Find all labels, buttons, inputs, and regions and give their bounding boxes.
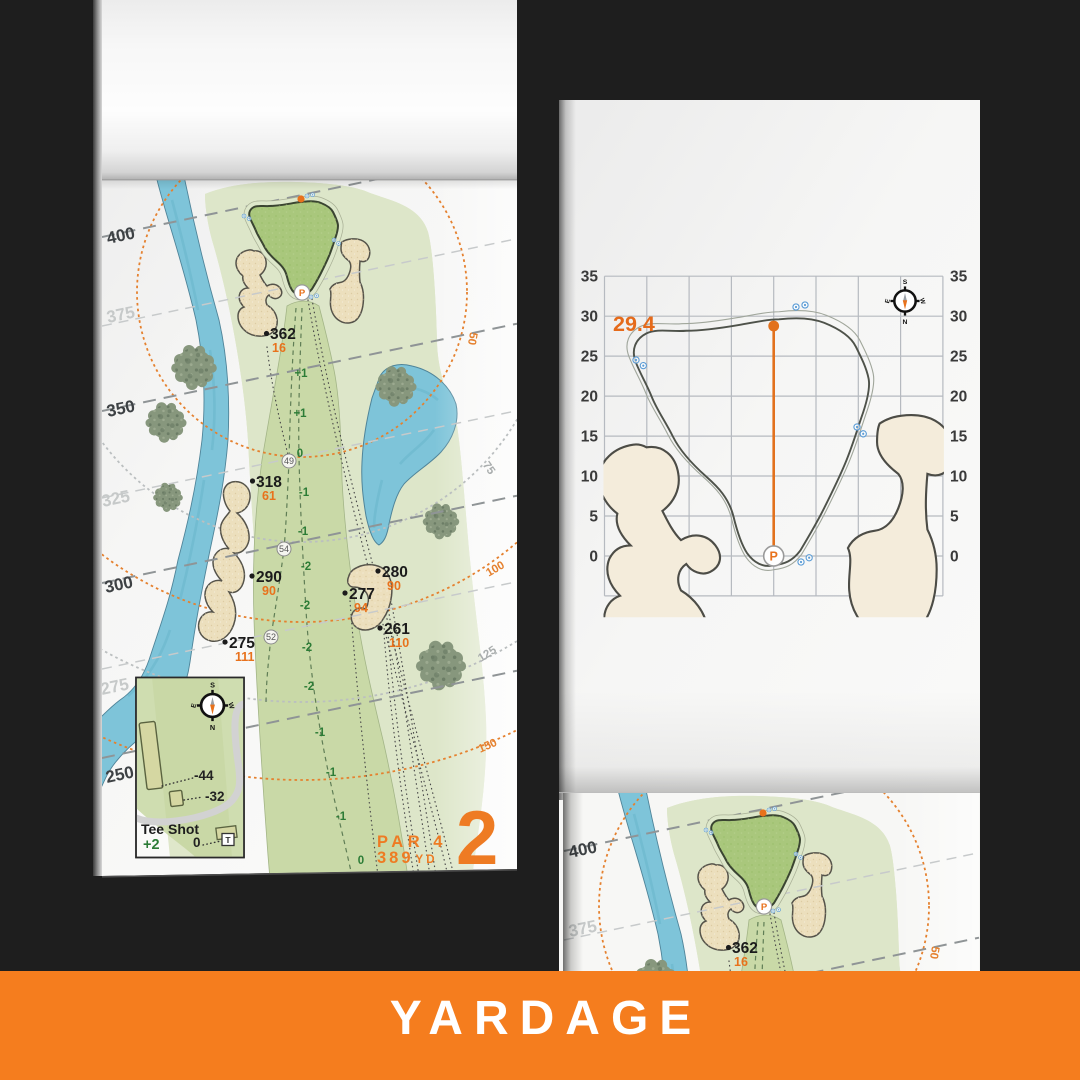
svg-text:30: 30 [950,309,967,326]
svg-text:15: 15 [950,429,968,446]
svg-text:5: 5 [589,509,598,526]
svg-text:25: 25 [950,349,968,366]
svg-text:29.4: 29.4 [613,312,655,336]
svg-text:20: 20 [950,389,967,406]
svg-text:10: 10 [581,469,598,486]
svg-text:35: 35 [950,269,968,286]
svg-text:5: 5 [950,509,959,526]
svg-text:0: 0 [950,549,959,566]
svg-text:20: 20 [581,389,598,406]
svg-text:0: 0 [589,549,598,566]
svg-text:30: 30 [581,309,598,326]
svg-text:YARDAGE: YARDAGE [390,992,703,1045]
svg-text:10: 10 [950,469,967,486]
svg-text:25: 25 [581,349,599,366]
svg-text:15: 15 [581,429,599,446]
svg-text:35: 35 [581,269,599,286]
